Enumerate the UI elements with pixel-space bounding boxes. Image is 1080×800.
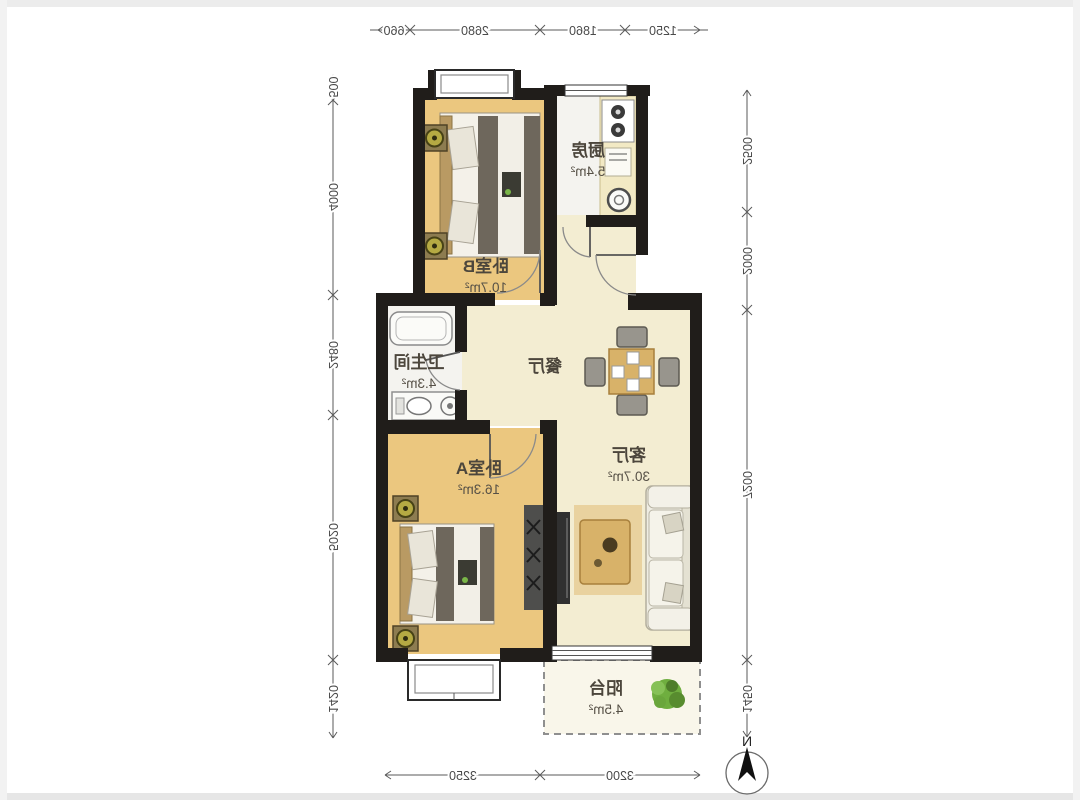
kitchen-label: 厨房 (571, 140, 605, 160)
dim-right-5: 1420 (326, 685, 340, 713)
cutting-board (605, 148, 631, 176)
compass-label: N (742, 733, 752, 749)
balcony-area: 4.5m² (588, 702, 623, 717)
bedroom-b-bay-window (428, 70, 521, 100)
mirrored-plan: 厨房 5.4m² 卧室B 10.7m² 卫生间 4.3m² 餐厅 客厅 30.7… (326, 24, 768, 794)
dim-right-3: 2480 (326, 341, 340, 369)
entry-floor (552, 215, 636, 315)
floorplan-page: 厨房 5.4m² 卧室B 10.7m² 卫生间 4.3m² 餐厅 客厅 30.7… (0, 0, 1080, 800)
bedroom-b-label: 卧室B (463, 256, 509, 276)
compass-icon: N (726, 733, 768, 794)
dim-top-3: 2680 (461, 24, 489, 38)
bedroom-a-area: 16.3m² (457, 482, 500, 497)
bathroom-label: 卫生间 (394, 352, 445, 372)
dim-right-2: 4000 (326, 183, 340, 211)
living-label: 客厅 (612, 445, 647, 465)
basin (407, 398, 431, 415)
living-area: 30.7m² (607, 469, 650, 484)
dim-right-4: 5020 (326, 523, 340, 551)
dim-top-1: 1250 (649, 24, 677, 38)
kitchen-counter (600, 96, 636, 224)
dim-bottom-1: 3200 (606, 769, 634, 783)
sink (608, 189, 630, 211)
wardrobe (524, 505, 543, 610)
bedroom-a-bay-window (408, 660, 500, 700)
floorplan-svg: 厨房 5.4m² 卧室B 10.7m² 卫生间 4.3m² 餐厅 客厅 30.7… (0, 0, 1080, 800)
dim-top-2: 1860 (569, 24, 597, 38)
bedroom-a-label: 卧室A (456, 458, 502, 478)
tv (556, 512, 570, 604)
bathroom-area: 4.3m² (401, 376, 436, 391)
coffee-table (580, 520, 630, 584)
balcony-label: 阳台 (589, 678, 623, 698)
kitchen-area: 5.4m² (570, 164, 605, 179)
dim-top-4: 660 (384, 24, 405, 38)
bedroom-b-area: 10.7m² (464, 280, 507, 295)
dining-label: 餐厅 (528, 356, 562, 376)
dim-right-1: 500 (326, 77, 340, 98)
dim-left-2: 2000 (740, 247, 754, 275)
dim-left-4: 1450 (740, 685, 754, 713)
dim-left-1: 2500 (740, 137, 754, 165)
kitchen-window (565, 85, 627, 96)
balcony-window (552, 646, 652, 660)
dim-left-3: 7200 (740, 471, 754, 499)
bed-b (422, 113, 540, 259)
dim-bottom-2: 3250 (449, 769, 477, 783)
